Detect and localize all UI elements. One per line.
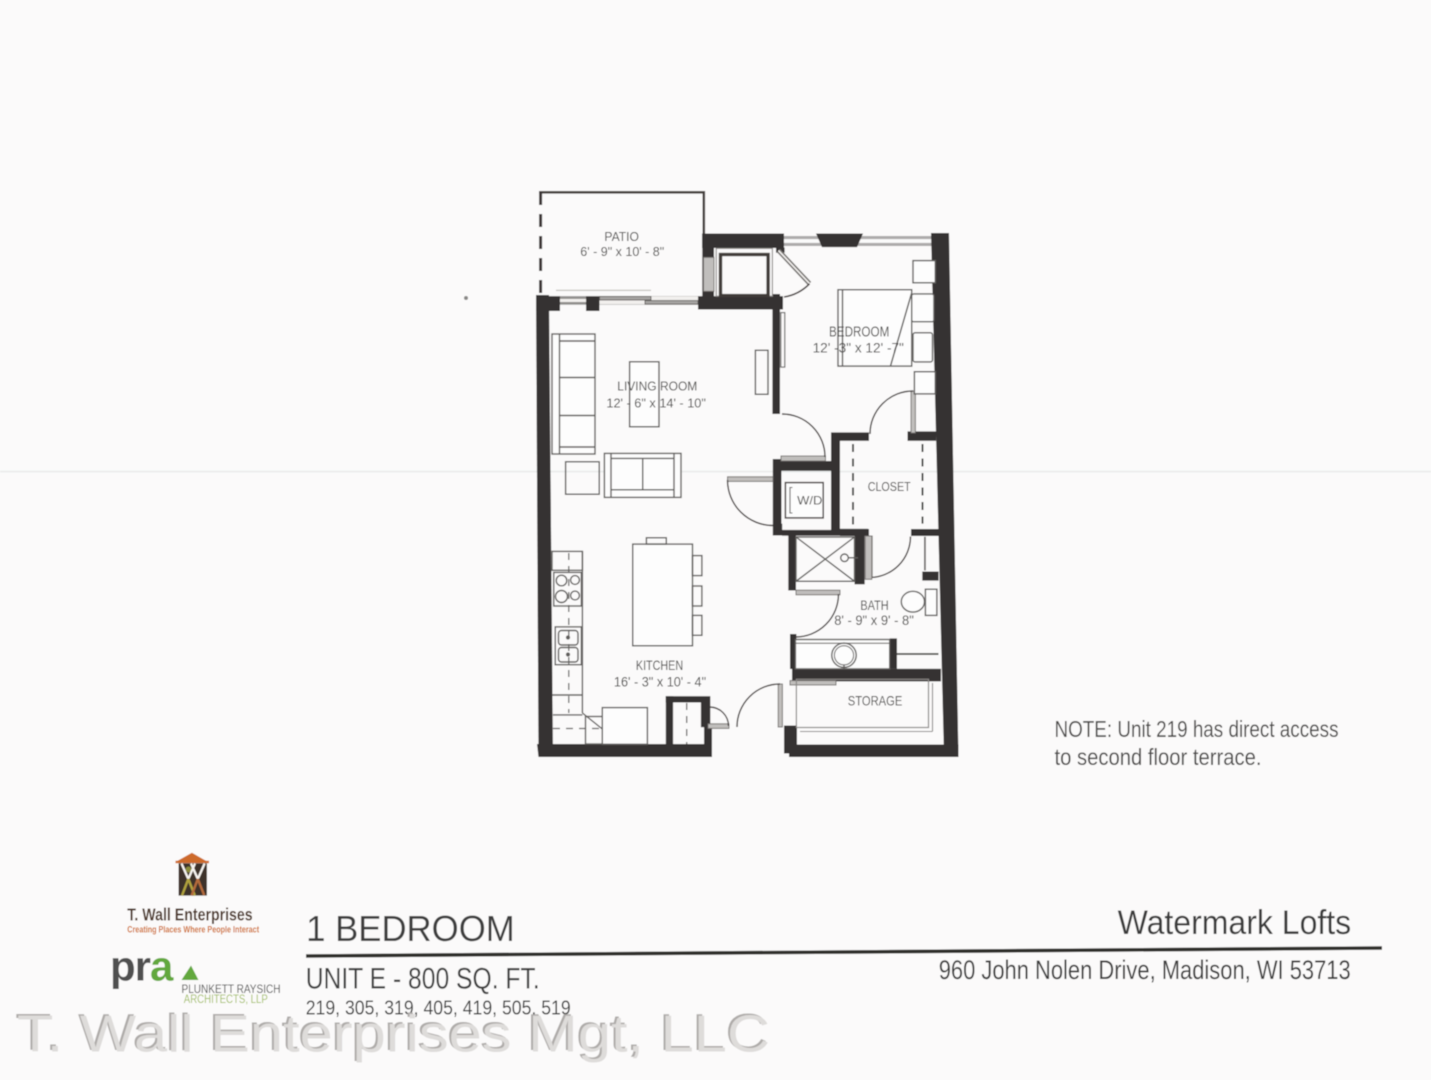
svg-text:T. Wall Enterprises: T. Wall Enterprises: [127, 904, 253, 924]
svg-text:LIVING ROOM: LIVING ROOM: [617, 379, 697, 394]
svg-text:UNIT E - 800 SQ. FT.: UNIT E - 800 SQ. FT.: [306, 963, 540, 996]
svg-text:PATIO: PATIO: [604, 229, 639, 244]
svg-text:12' - 6" x 14' - 10": 12' - 6" x 14' - 10": [606, 395, 706, 410]
svg-text:6' - 9" x 10' - 8": 6' - 9" x 10' - 8": [580, 244, 664, 259]
svg-text:NOTE: Unit 219 has direct acce: NOTE: Unit 219 has direct access: [1055, 716, 1339, 742]
svg-text:CLOSET: CLOSET: [868, 479, 911, 494]
svg-text:W/D: W/D: [797, 494, 823, 508]
svg-text:KITCHEN: KITCHEN: [636, 657, 683, 673]
svg-text:BATH: BATH: [860, 597, 888, 613]
svg-text:Watermark Lofts: Watermark Lofts: [1118, 904, 1352, 942]
svg-text:12' -3" x 12' -7": 12' -3" x 12' -7": [813, 340, 904, 356]
svg-text:pra: pra: [110, 943, 174, 990]
svg-text:to second floor terrace.: to second floor terrace.: [1055, 744, 1262, 770]
svg-text:Creating Places Where People I: Creating Places Where People Interact: [127, 924, 259, 935]
svg-text:16' - 3" x 10' - 4": 16' - 3" x 10' - 4": [614, 674, 706, 690]
svg-text:BEDROOM: BEDROOM: [829, 323, 889, 340]
svg-text:8' - 9" x 9' - 8": 8' - 9" x 9' - 8": [834, 612, 914, 628]
svg-text:1 BEDROOM: 1 BEDROOM: [306, 908, 515, 949]
svg-text:960 John Nolen Drive, Madison,: 960 John Nolen Drive, Madison, WI 53713: [939, 955, 1351, 985]
svg-text:T. Wall Enterprises Mgt, LLC: T. Wall Enterprises Mgt, LLC: [17, 1006, 770, 1064]
svg-text:STORAGE: STORAGE: [848, 693, 903, 709]
